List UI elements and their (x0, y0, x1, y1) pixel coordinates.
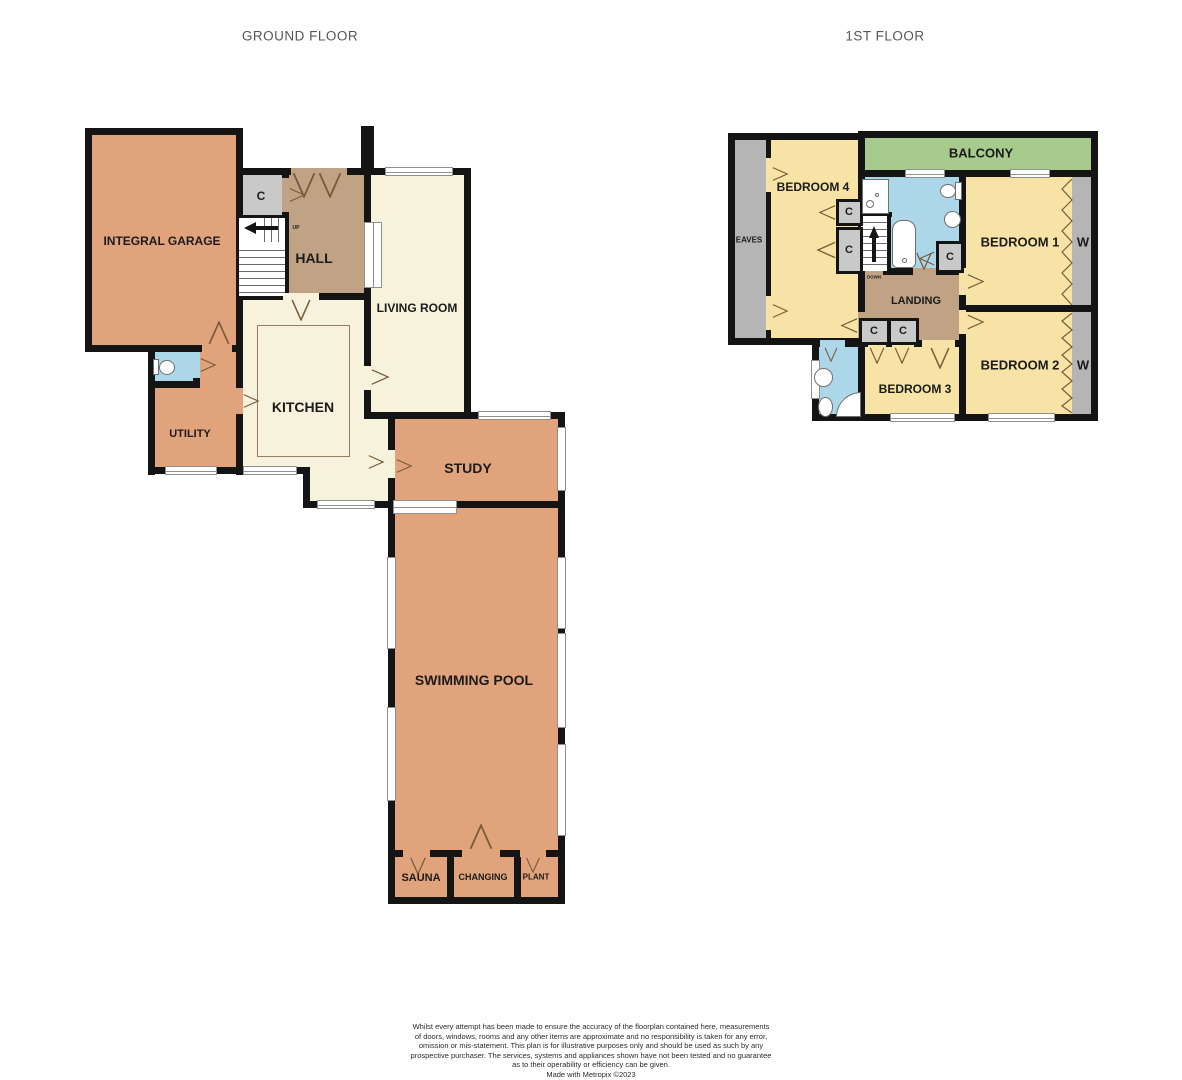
door-gap (520, 850, 546, 857)
wall-segment (388, 897, 565, 904)
window (890, 413, 955, 422)
label-changing: CHANGING (459, 872, 508, 882)
stairs-down-label: DOWN (867, 275, 881, 280)
toilet-icon (940, 184, 956, 198)
window (387, 707, 396, 801)
stair-treads (239, 244, 285, 296)
label-kitchen: KITCHEN (272, 399, 334, 415)
toilet-icon (955, 182, 962, 200)
disclaimer-line: of doors, windows, rooms and any other i… (371, 1032, 811, 1042)
wall-segment (236, 128, 243, 475)
label-landing: LANDING (891, 295, 941, 307)
wall-segment (959, 305, 1097, 312)
room-kitchen-lower (306, 470, 391, 504)
label-closet4: C (870, 325, 878, 337)
door-gap (462, 850, 500, 857)
toilet-icon (159, 360, 175, 375)
toilet-icon (818, 397, 833, 417)
door-swing-icon (866, 347, 888, 364)
window (165, 466, 217, 475)
wall-segment (303, 467, 310, 508)
folding-door-icon (1061, 313, 1073, 413)
wall-segment (388, 412, 395, 904)
kitchen-counter (257, 325, 350, 457)
wall-segment (887, 214, 891, 271)
label-eaves: EAVES (736, 236, 763, 245)
door-swing-icon (203, 321, 235, 345)
door-swing-icon (816, 204, 839, 221)
door-swing-icon (285, 299, 317, 321)
wall-segment (959, 170, 966, 421)
disclaimer-line: as to their operability or efficiency ca… (371, 1060, 811, 1070)
shower-icon (862, 179, 889, 214)
stairs-down-arrow-icon (868, 226, 880, 264)
window (385, 167, 453, 176)
door-gap (403, 850, 430, 857)
chimney-breast (364, 222, 382, 288)
label-closet2: C (845, 244, 853, 256)
label-plant: PLANT (523, 873, 550, 882)
window (393, 500, 457, 514)
window (1010, 169, 1050, 178)
window (557, 427, 566, 491)
label-living-room: LIVING ROOM (377, 301, 458, 315)
label-wardrobe1: W (1077, 235, 1089, 250)
door-swing-icon (820, 347, 842, 362)
door-swing-icon (390, 458, 418, 474)
label-study: STUDY (444, 460, 491, 476)
window (557, 633, 566, 728)
door-swing-icon (891, 347, 913, 364)
wall-segment (85, 128, 242, 135)
door-swing-icon (463, 824, 499, 850)
door-swing-icon (925, 347, 955, 369)
label-closet5: C (899, 325, 907, 337)
disclaimer-line: prospective purchaser. The services, sys… (371, 1051, 811, 1061)
door-swing-icon (238, 393, 264, 409)
door-swing-icon (520, 857, 546, 873)
label-bedroom2: BEDROOM 2 (981, 358, 1060, 373)
disclaimer-text: Whilst every attempt has been made to en… (371, 1022, 811, 1080)
door-gap (922, 340, 955, 347)
door-swing-icon (317, 172, 343, 198)
disclaimer-line: Whilst every attempt has been made to en… (371, 1022, 811, 1032)
label-closet1: C (845, 206, 853, 218)
label-hall: HALL (295, 250, 332, 266)
door-swing-icon (807, 241, 847, 260)
label-bedroom4: BEDROOM 4 (777, 180, 850, 194)
label-utility: UTILITY (169, 428, 211, 440)
label-integral-garage: INTEGRAL GARAGE (103, 234, 220, 248)
window (478, 411, 551, 420)
window (243, 466, 297, 475)
label-swimming-pool: SWIMMING POOL (415, 672, 533, 688)
door-gap (202, 345, 232, 352)
label-bedroom1: BEDROOM 1 (981, 235, 1060, 250)
door-swing-icon (362, 454, 390, 470)
wall-segment (858, 170, 1097, 177)
wall-segment (85, 128, 92, 352)
door-swing-icon (367, 368, 393, 386)
label-ground-closet: C (257, 189, 266, 203)
wall-segment (464, 168, 471, 419)
door-swing-icon (836, 317, 863, 334)
window (557, 744, 566, 836)
window (905, 169, 945, 178)
door-swing-icon (964, 314, 988, 331)
ground-floor-title: GROUND FLOOR (242, 29, 358, 44)
disclaimer-line: omission or mis-statement. This plan is … (371, 1041, 811, 1051)
door-swing-icon (962, 273, 989, 290)
label-sauna: SAUNA (401, 872, 440, 884)
wall-segment (728, 133, 864, 140)
label-wardrobe2: W (1077, 358, 1089, 373)
stairs-up-label: UP (293, 225, 300, 231)
wall-segment (447, 850, 454, 904)
floorplan-canvas: GROUND FLOOR 1ST FLOOR (0, 0, 1182, 1080)
door-swing-icon (915, 251, 940, 267)
window (317, 500, 375, 509)
door-swing-icon (195, 357, 221, 373)
wall-segment (858, 131, 865, 421)
label-balcony: BALCONY (949, 146, 1013, 161)
wall-segment (858, 131, 1097, 138)
sink-icon (944, 211, 961, 228)
door-gap (820, 340, 845, 347)
made-with-credit: Made with Metropix ©2023 (371, 1070, 811, 1080)
door-swing-icon (282, 187, 312, 203)
folding-door-icon (1061, 179, 1073, 305)
label-closet3: C (946, 251, 954, 263)
first-floor-title: 1ST FLOOR (845, 29, 924, 44)
sink-icon (814, 368, 833, 387)
label-bedroom3: BEDROOM 3 (879, 382, 952, 396)
window (557, 557, 566, 629)
window (387, 557, 396, 649)
stairs-up-arrow-icon (244, 221, 282, 235)
door-swing-icon (763, 303, 797, 319)
wall-segment (728, 133, 735, 345)
window (988, 413, 1055, 422)
